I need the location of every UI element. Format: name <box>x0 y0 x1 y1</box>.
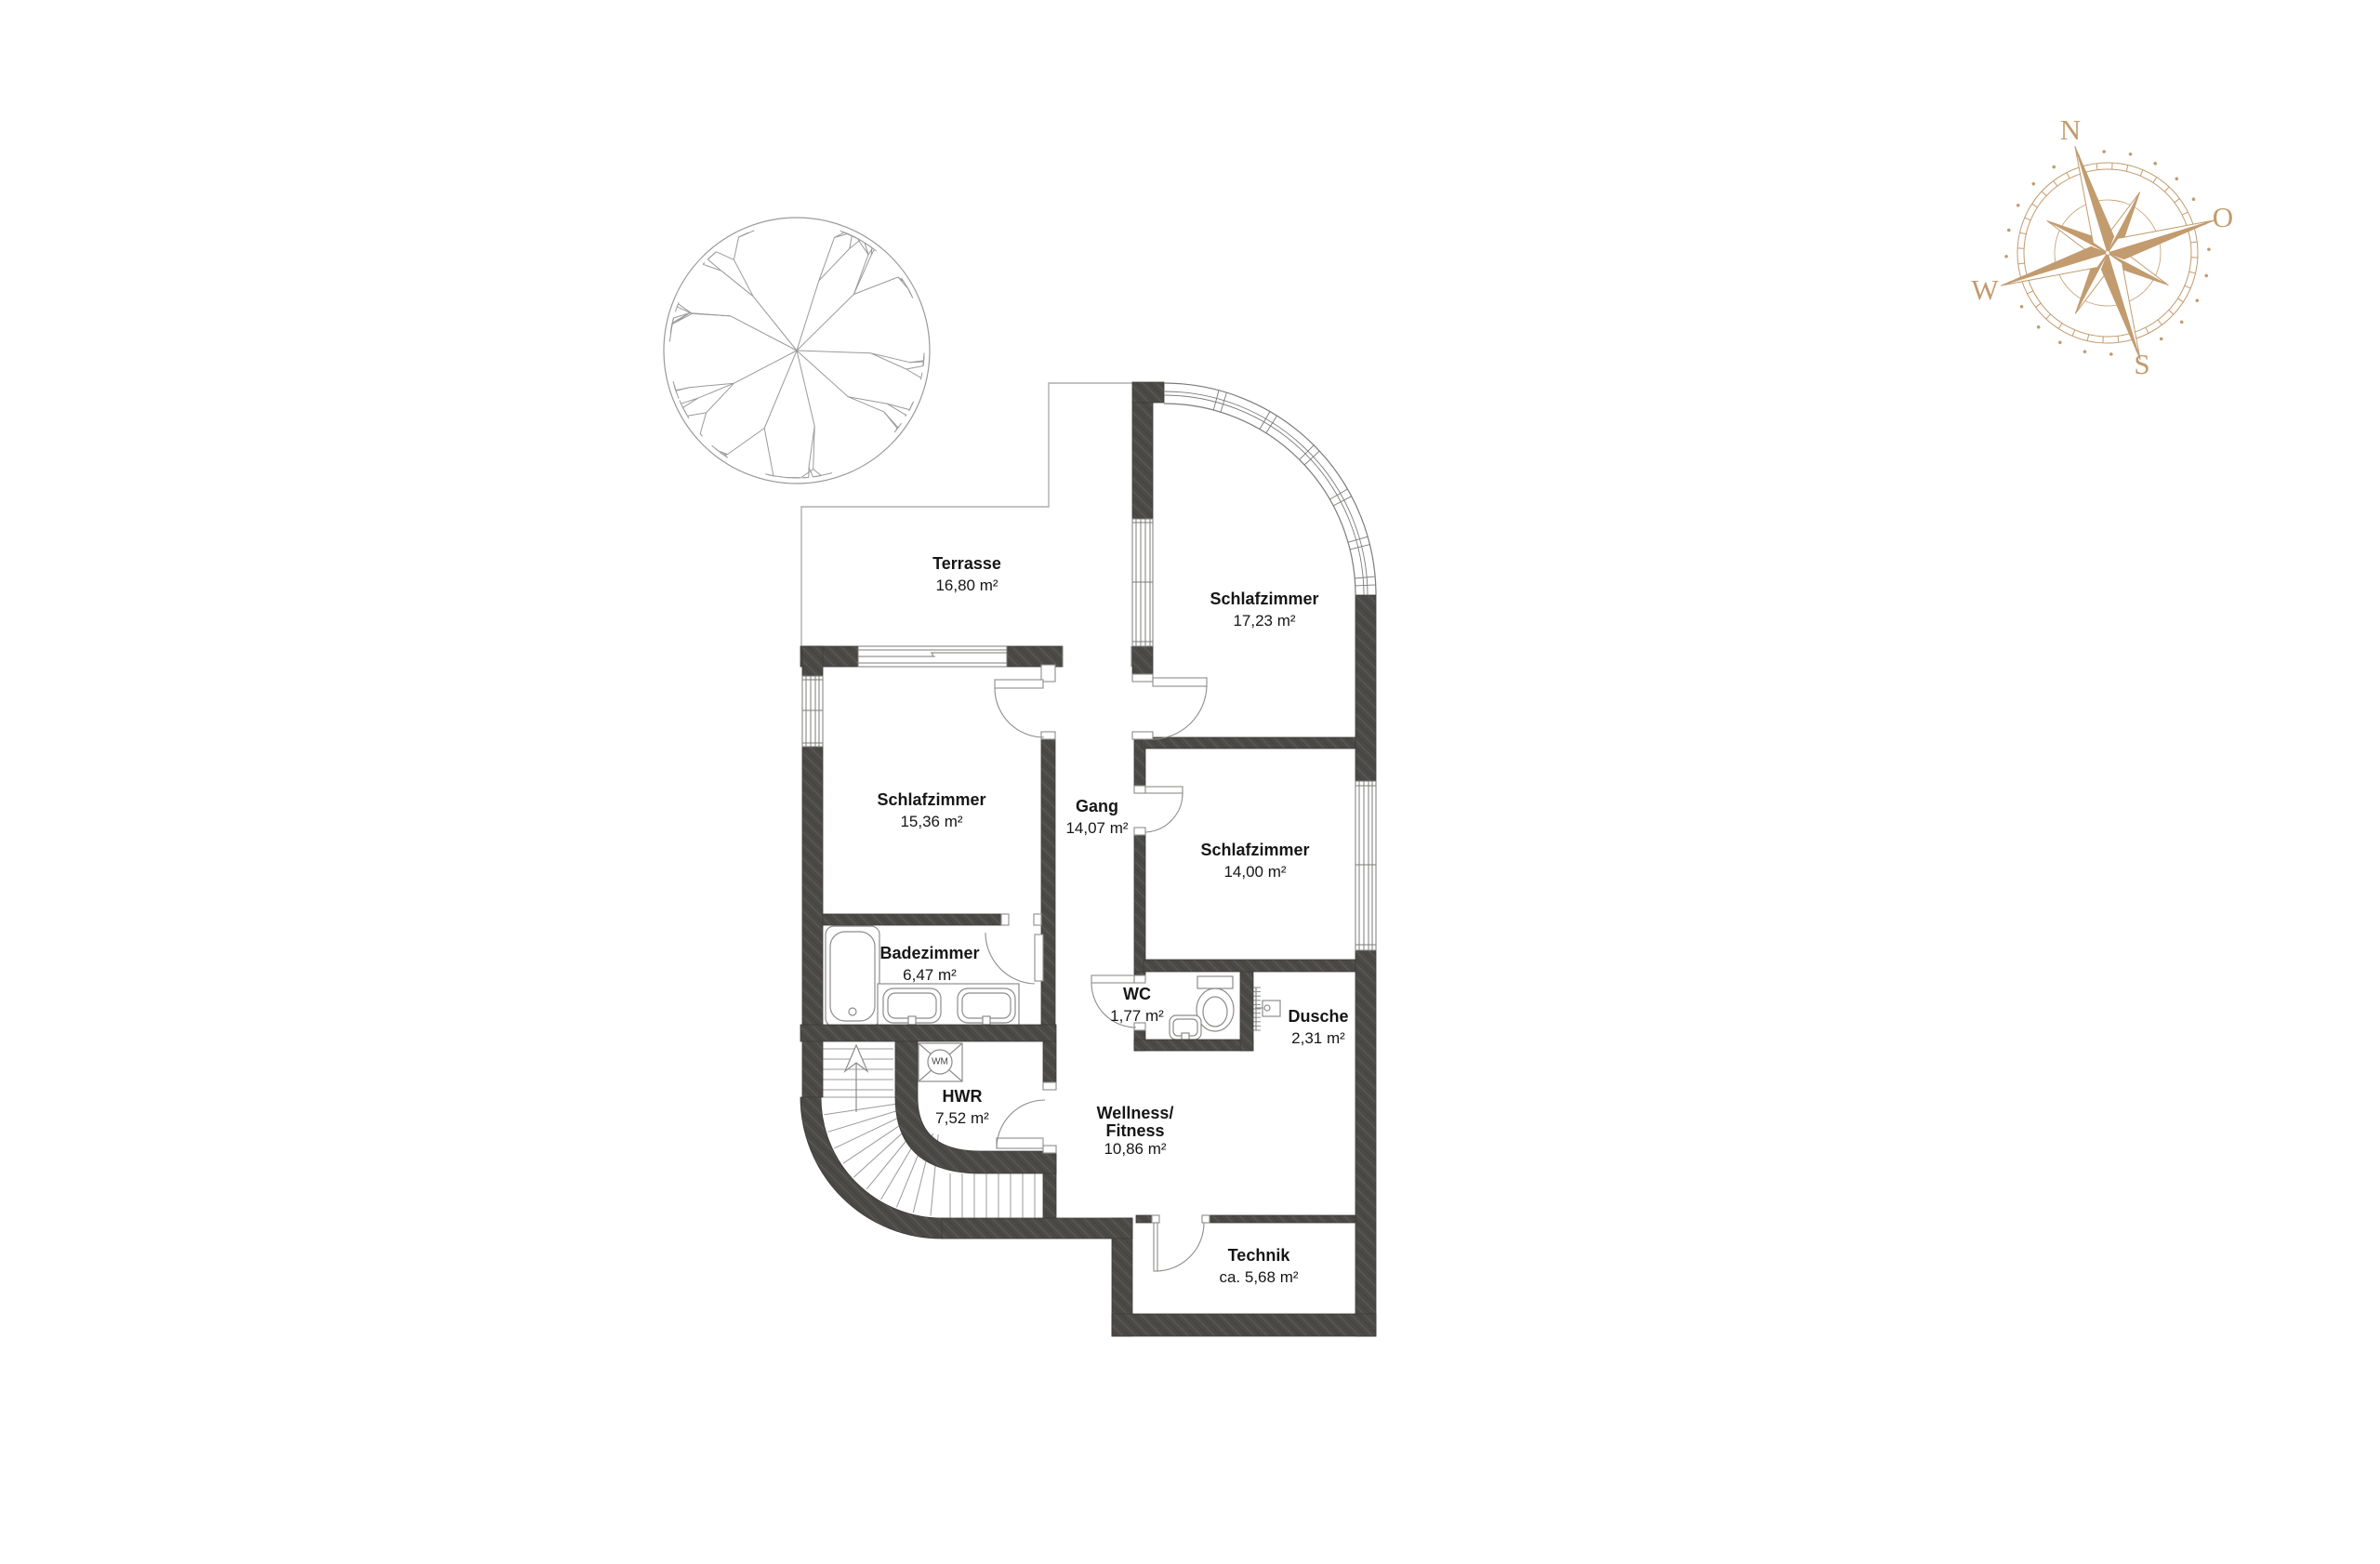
windows <box>802 519 1376 950</box>
compass-rose <box>1968 113 2247 392</box>
compass-west-label: W <box>1971 273 1998 307</box>
terrace-window <box>858 646 1007 667</box>
washing-machine-label: WM <box>932 1057 948 1067</box>
room-area: 14,07 m² <box>1065 817 1128 840</box>
terrace-bedroom-window <box>1132 519 1153 646</box>
room-name: Badezimmer <box>879 942 979 964</box>
room-name: Schlafzimmer <box>1200 839 1309 861</box>
room-label-wc: WC 1,77 m² <box>1110 983 1164 1027</box>
compass-east-label: O <box>2213 201 2233 234</box>
compass-south-label: S <box>2134 348 2149 381</box>
floor-plan-page: Terrasse 16,80 m² Schlafzimmer 17,23 m² … <box>0 0 2380 1564</box>
room-label-schlafzimmer-bay: Schlafzimmer 17,23 m² <box>1210 588 1318 632</box>
door-technik <box>1152 1215 1210 1271</box>
door-schlafzimmer-east <box>1134 786 1183 835</box>
room-label-terrasse: Terrasse 16,80 m² <box>932 552 1001 597</box>
room-area: ca. 5,68 m² <box>1219 1266 1298 1289</box>
room-area: 17,23 m² <box>1210 610 1318 632</box>
terrace-outline <box>801 383 1132 646</box>
right-wall-window <box>1355 781 1376 950</box>
room-area: 1,77 m² <box>1110 1005 1164 1027</box>
room-name: Dusche <box>1288 1005 1348 1027</box>
room-area: 10,86 m² <box>1097 1140 1174 1158</box>
wc-sink <box>1170 1015 1201 1040</box>
room-name: Schlafzimmer <box>1210 588 1318 610</box>
stair-direction-arrow <box>845 1045 867 1112</box>
shower-fixture <box>1252 987 1280 1030</box>
tree-symbol <box>664 218 930 484</box>
floor-plan-drawing <box>0 0 2380 1564</box>
room-name: Schlafzimmer <box>877 789 985 811</box>
room-label-hwr: HWR 7,52 m² <box>935 1085 989 1130</box>
room-label-technik: Technik ca. 5,68 m² <box>1219 1244 1298 1289</box>
room-label-dusche: Dusche 2,31 m² <box>1288 1005 1348 1050</box>
room-label-schlafzimmer-east: Schlafzimmer 14,00 m² <box>1200 839 1309 883</box>
door-schlafzimmer-west <box>995 665 1055 739</box>
room-label-schlafzimmer-west: Schlafzimmer 15,36 m² <box>877 789 985 833</box>
room-area: 7,52 m² <box>935 1107 989 1130</box>
room-area: 2,31 m² <box>1288 1027 1348 1050</box>
room-label-gang: Gang 14,07 m² <box>1065 795 1128 840</box>
room-name: Technik <box>1219 1244 1298 1266</box>
room-area: 6,47 m² <box>879 964 979 987</box>
room-label-badezimmer: Badezimmer 6,47 m² <box>879 942 979 987</box>
room-name: Gang <box>1065 795 1128 817</box>
door-schlafzimmer-bay <box>1132 674 1207 739</box>
room-name: HWR <box>935 1085 989 1107</box>
room-name: Fitness <box>1097 1122 1174 1140</box>
room-name: Wellness/ <box>1097 1105 1174 1122</box>
room-name: Terrasse <box>932 552 1001 575</box>
room-name: WC <box>1110 983 1164 1005</box>
room-area: 14,00 m² <box>1200 861 1309 883</box>
room-area: 15,36 m² <box>877 811 985 833</box>
left-wall-window <box>802 676 823 747</box>
bathtub <box>826 926 879 1027</box>
compass-north-label: N <box>2060 113 2081 147</box>
door-hwr <box>997 1082 1056 1153</box>
room-label-wellness: Wellness/ Fitness 10,86 m² <box>1097 1105 1174 1158</box>
terrace-opening <box>1063 646 1131 667</box>
toilet <box>1197 976 1234 1031</box>
room-area: 16,80 m² <box>932 575 1001 597</box>
bay-window <box>1164 383 1376 595</box>
double-sink <box>878 984 1019 1027</box>
